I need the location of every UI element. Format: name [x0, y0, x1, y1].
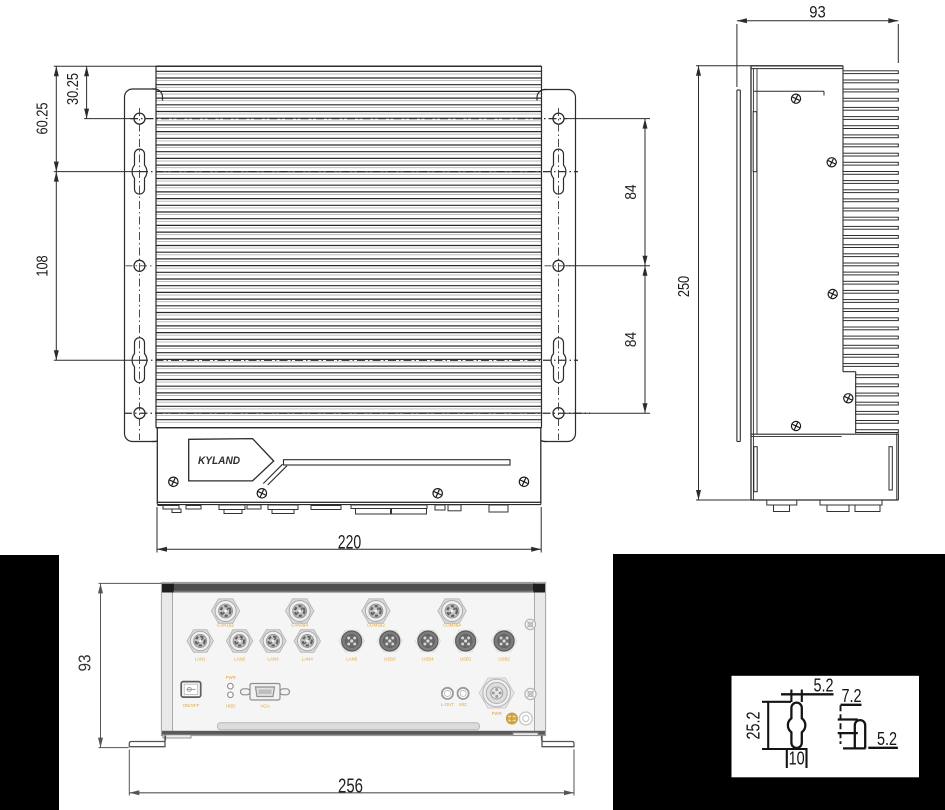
- svg-text:PWR: PWR: [226, 675, 236, 680]
- svg-text:L-OUT: L-OUT: [441, 702, 454, 707]
- svg-text:5.2: 5.2: [813, 675, 833, 696]
- svg-text:PWR: PWR: [492, 711, 502, 716]
- svg-text:CAN1&2: CAN1&2: [217, 623, 235, 628]
- svg-text:30.25: 30.25: [65, 73, 83, 105]
- svg-text:10: 10: [789, 748, 805, 769]
- svg-text:VGA: VGA: [260, 704, 269, 709]
- svg-text:7.2: 7.2: [841, 685, 861, 706]
- svg-text:USB2: USB2: [498, 657, 510, 662]
- svg-text:HDD: HDD: [226, 704, 236, 709]
- svg-text:84: 84: [623, 332, 640, 347]
- svg-text:LAN4: LAN4: [302, 657, 314, 662]
- svg-text:60.25: 60.25: [34, 103, 52, 135]
- svg-text:MIC: MIC: [459, 702, 467, 707]
- svg-text:256: 256: [338, 774, 363, 797]
- svg-text:LAN5: LAN5: [346, 657, 358, 662]
- svg-text:220: 220: [338, 531, 361, 553]
- svg-text:25.2: 25.2: [743, 711, 764, 739]
- svg-text:COM3&4: COM3&4: [443, 623, 462, 628]
- svg-text:108: 108: [34, 255, 52, 276]
- svg-text:84: 84: [623, 184, 640, 199]
- svg-text:93: 93: [74, 654, 94, 671]
- svg-text:KYLAND: KYLAND: [198, 454, 240, 466]
- svg-text:250: 250: [676, 276, 694, 297]
- svg-text:CAN3&4: CAN3&4: [291, 623, 309, 628]
- svg-text:LAN1: LAN1: [195, 657, 207, 662]
- svg-text:LAN3: LAN3: [268, 657, 280, 662]
- svg-text:COM1&2: COM1&2: [367, 623, 386, 628]
- svg-text:USB4: USB4: [422, 657, 434, 662]
- svg-text:USB1: USB1: [460, 657, 472, 662]
- svg-text:93: 93: [809, 4, 826, 22]
- svg-text:5.2: 5.2: [877, 728, 897, 749]
- svg-text:LAN2: LAN2: [234, 657, 246, 662]
- svg-text:USB3: USB3: [384, 657, 396, 662]
- svg-text:ON/OFF: ON/OFF: [183, 703, 200, 708]
